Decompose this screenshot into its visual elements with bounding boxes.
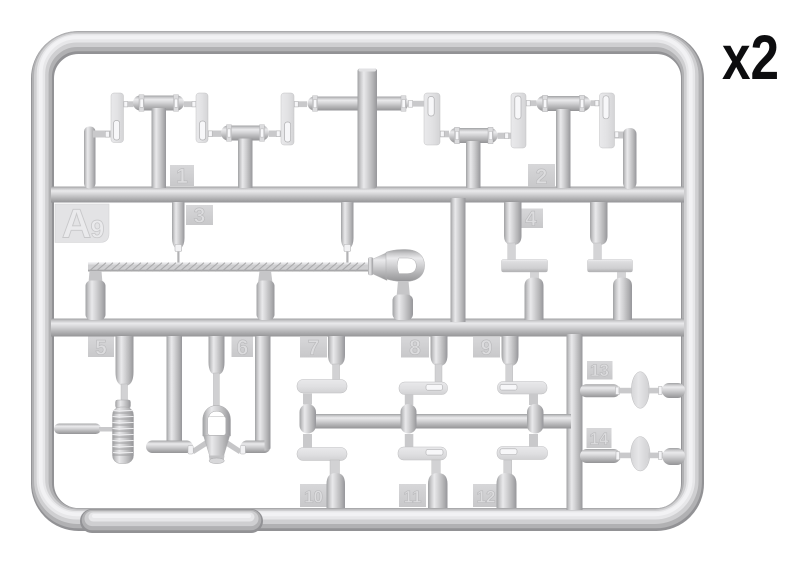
svg-text:12: 12 [477,488,496,507]
svg-text:4: 4 [525,208,537,231]
svg-text:7: 7 [308,337,320,360]
svg-text:6: 6 [237,337,249,360]
svg-text:A: A [62,201,92,247]
svg-text:9: 9 [481,337,493,360]
svg-text:10: 10 [304,488,323,507]
svg-text:2: 2 [536,166,548,189]
svg-text:1: 1 [176,165,188,188]
svg-text:11: 11 [404,488,422,507]
svg-text:x2: x2 [722,23,779,93]
svg-text:5: 5 [95,337,107,360]
svg-text:3: 3 [194,205,206,228]
svg-text:13: 13 [590,361,609,380]
svg-text:8: 8 [409,337,421,360]
svg-text:9: 9 [91,216,105,244]
svg-text:14: 14 [590,430,609,449]
